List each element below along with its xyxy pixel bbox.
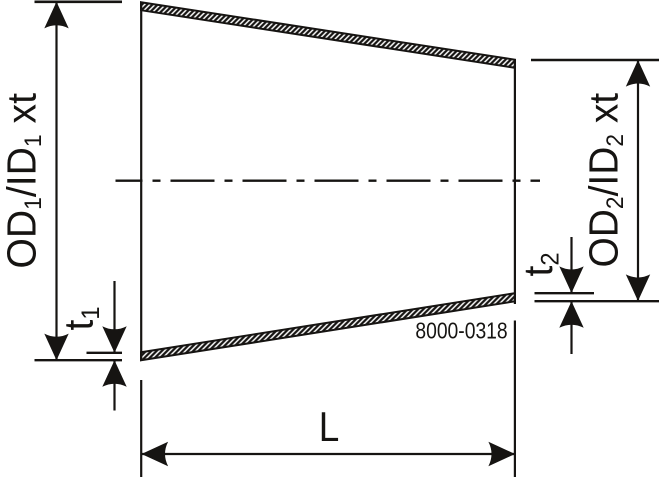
svg-text:8000-0318: 8000-0318 (415, 319, 507, 344)
svg-text:OD1/ID1 xt: OD1/ID1 xt (0, 93, 46, 269)
svg-text:t1: t1 (57, 306, 106, 330)
svg-text:L: L (319, 404, 340, 451)
svg-text:OD2/ID2 xt: OD2/ID2 xt (582, 93, 629, 268)
svg-text:t2: t2 (516, 252, 565, 276)
